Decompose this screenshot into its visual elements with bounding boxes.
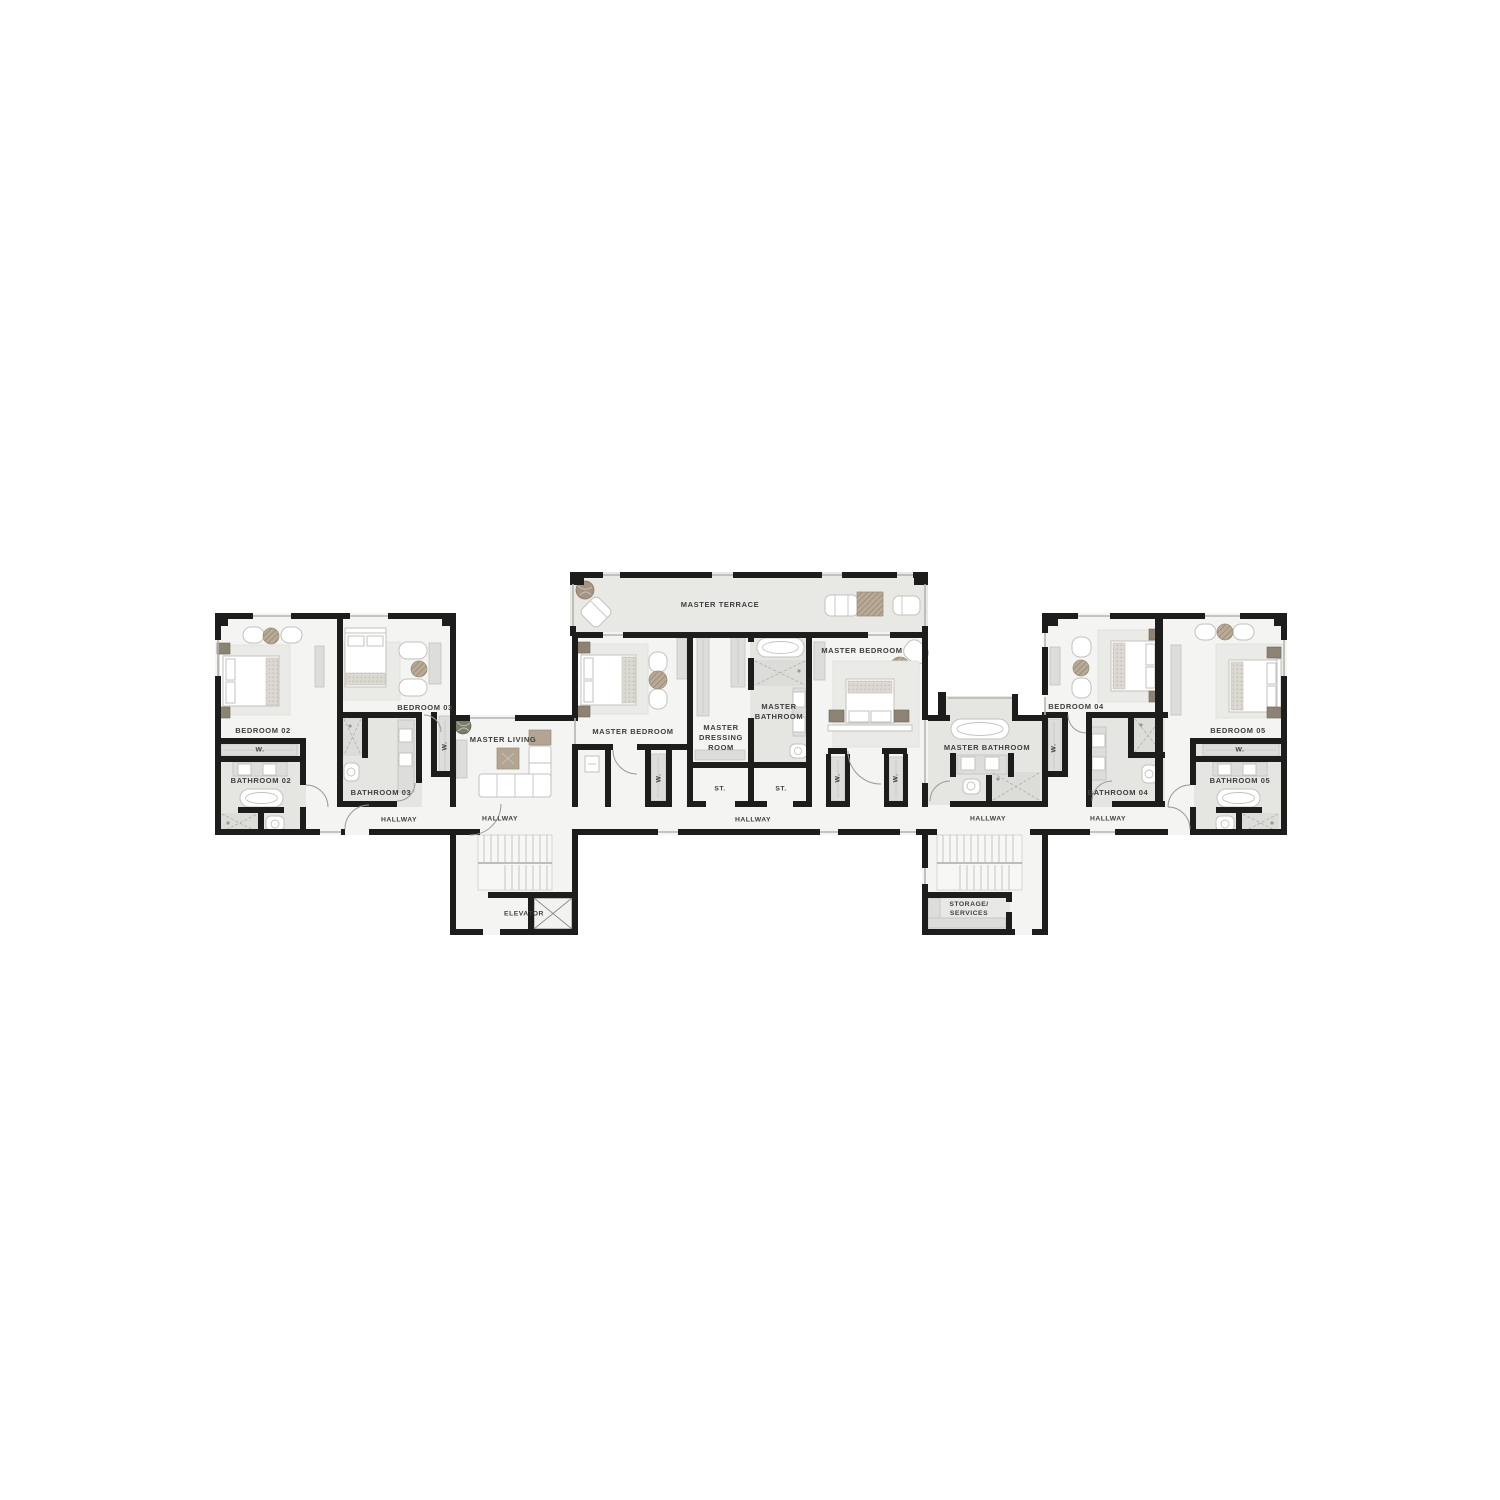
bathtub-icon <box>951 719 1009 739</box>
floor-plan-canvas: MASTER TERRACE BEDROOM 02 W. BATHROOM 02… <box>0 0 1500 1500</box>
bed-throw <box>622 657 635 703</box>
shelving <box>928 918 1006 928</box>
bathtub-icon <box>1217 789 1260 807</box>
armchair-icon <box>1072 637 1091 657</box>
bathtub-icon <box>240 789 283 807</box>
nightstand <box>576 642 590 653</box>
right-staircase <box>937 835 1022 890</box>
toilet-icon <box>266 816 284 831</box>
sink-icon <box>1218 764 1231 775</box>
shower-head-icon <box>1139 723 1142 726</box>
wardrobe <box>651 754 666 801</box>
pillow <box>849 711 869 722</box>
toilet-icon <box>963 779 980 794</box>
pouf-icon <box>263 628 279 644</box>
pouf-icon <box>1217 624 1233 640</box>
toilet-icon <box>1216 816 1234 831</box>
shower-head-icon <box>226 821 229 824</box>
armchair-icon <box>649 652 667 672</box>
nightstand <box>829 710 844 722</box>
sink-icon <box>1092 734 1105 747</box>
pillow <box>584 658 593 679</box>
armchair-icon <box>1233 624 1254 640</box>
console <box>814 642 825 680</box>
toilet-icon <box>790 744 807 758</box>
wardrobe <box>695 750 745 760</box>
console <box>1050 647 1060 685</box>
armchair-icon <box>1195 624 1216 640</box>
shower-head-icon <box>797 669 800 672</box>
sink-icon <box>793 717 805 732</box>
armchair-icon <box>1072 678 1091 698</box>
nightstand <box>1267 647 1281 658</box>
pillow <box>584 681 593 702</box>
sink-icon <box>399 753 412 766</box>
pillow <box>1146 667 1155 688</box>
sink-icon <box>961 757 975 770</box>
bed-throw <box>1231 662 1243 710</box>
pouf-icon <box>1073 660 1089 676</box>
master-bathroom-right-bay-floor <box>946 696 1014 717</box>
armchair-icon <box>649 689 667 709</box>
pouf-icon <box>649 671 667 689</box>
nightstand <box>1267 707 1281 718</box>
nightstand <box>894 710 909 722</box>
pillow <box>348 636 364 646</box>
pillow <box>226 682 235 703</box>
sink-icon <box>985 757 999 770</box>
armchair-icon <box>281 627 302 643</box>
armchair-icon <box>399 679 427 696</box>
sink-icon <box>1092 757 1105 770</box>
pillow <box>1267 686 1276 707</box>
lounge-chair-icon <box>825 595 858 616</box>
outdoor-rug-icon <box>857 592 883 616</box>
sink-icon <box>238 764 251 775</box>
bathtub-icon <box>757 638 804 657</box>
shower-head-icon <box>348 724 351 727</box>
console <box>456 740 467 778</box>
bed-bench <box>828 725 912 731</box>
wardrobe <box>1048 719 1061 772</box>
shower-head-icon <box>996 777 999 780</box>
armchair-icon <box>243 627 264 643</box>
pillow <box>871 711 891 722</box>
nightstand <box>217 643 230 654</box>
toilet-icon <box>1142 765 1157 783</box>
pillow <box>226 659 235 680</box>
bed-throw <box>848 681 892 693</box>
shower-head-icon <box>1270 821 1273 824</box>
sink-icon <box>793 692 805 707</box>
floor-plan-drawing <box>0 0 1500 1500</box>
sink-icon <box>263 764 276 775</box>
pouf-icon <box>411 661 427 677</box>
toilet-icon <box>344 763 359 781</box>
left-staircase <box>478 835 552 890</box>
bed-throw <box>1113 643 1125 689</box>
console <box>1171 645 1181 715</box>
bed-headboard <box>345 628 386 633</box>
sink-icon <box>1243 764 1256 775</box>
bed-throw <box>266 658 278 705</box>
bed-throw <box>346 673 385 685</box>
pillow <box>367 636 383 646</box>
armchair-icon <box>399 642 427 659</box>
console <box>677 638 687 679</box>
pillow <box>1146 644 1155 665</box>
cabinet <box>529 730 551 745</box>
lounge-chair-icon <box>893 596 920 615</box>
elevator <box>534 898 572 929</box>
console <box>429 643 441 684</box>
pillow <box>1267 663 1276 684</box>
sink-icon <box>399 729 412 742</box>
nightstand <box>576 706 590 717</box>
console <box>315 646 324 687</box>
